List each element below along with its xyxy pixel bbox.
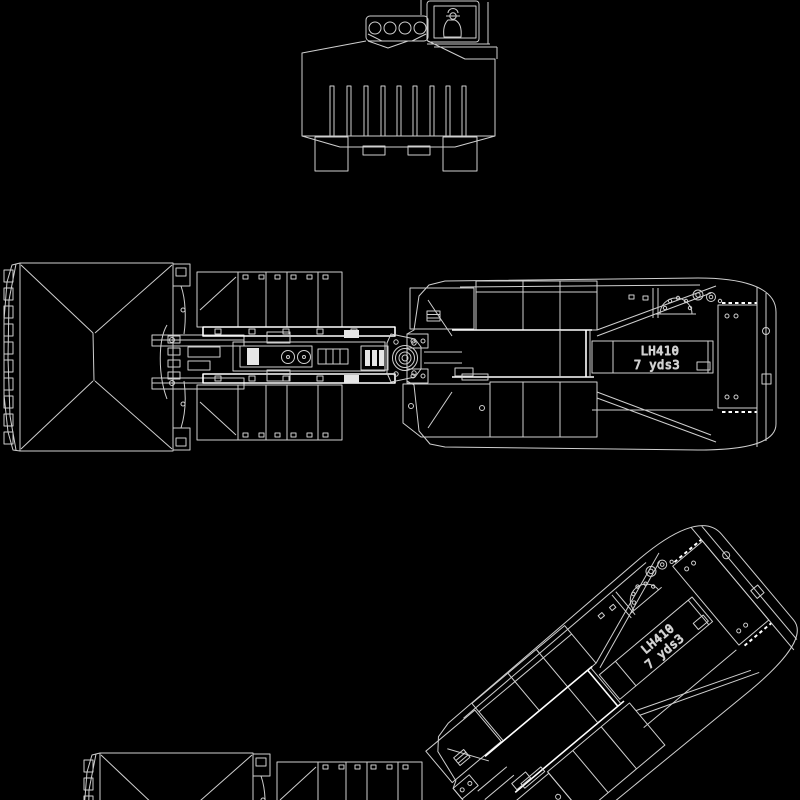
cad-drawing-canvas: LH410 7 yds3	[0, 0, 800, 800]
cad-drawing: LH410 7 yds3	[0, 0, 800, 800]
front-elevation-view	[302, 0, 497, 171]
operator-figure	[444, 9, 462, 38]
plan-view-straight	[4, 263, 776, 451]
operator-cab	[427, 1, 497, 59]
grille-slots	[330, 86, 466, 136]
roof-louver-box	[366, 16, 428, 48]
plan-view-articulated	[84, 508, 800, 800]
wheel-left-front-view	[315, 137, 348, 171]
rear-frame-rotated	[414, 508, 800, 800]
belly-skirt	[302, 136, 495, 147]
